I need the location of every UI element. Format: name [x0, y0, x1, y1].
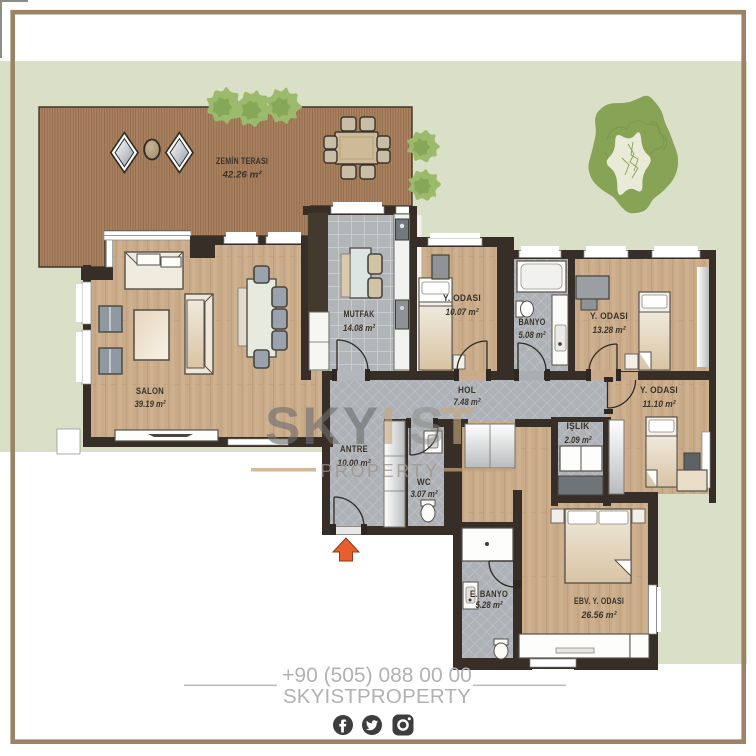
svg-text:26.56 m²: 26.56 m² [581, 610, 618, 621]
svg-text:14.08 m²: 14.08 m² [343, 323, 376, 334]
svg-text:Y. ODASI: Y. ODASI [640, 385, 678, 396]
svg-text:BANYO: BANYO [519, 317, 546, 328]
svg-text:PROPERTY: PROPERTY [320, 461, 440, 481]
svg-text:E. BANYO: E. BANYO [470, 589, 508, 600]
svg-text:SKY: SKY [265, 397, 380, 456]
svg-text:SKYISTPROPERTY: SKYISTPROPERTY [283, 685, 471, 708]
svg-text:EBV. Y. ODASI: EBV. Y. ODASI [574, 596, 624, 607]
svg-text:I: I [381, 397, 396, 456]
svg-text:11.10 m²: 11.10 m² [643, 399, 677, 410]
svg-text:5.08 m²: 5.08 m² [519, 330, 547, 341]
svg-text:42.26 m²: 42.26 m² [221, 170, 262, 181]
svg-text:13.28 m²: 13.28 m² [593, 325, 627, 336]
svg-text:2.09 m²: 2.09 m² [564, 435, 593, 446]
svg-text:5.28 m²: 5.28 m² [476, 600, 504, 611]
svg-text:3.07 m²: 3.07 m² [411, 489, 439, 500]
svg-text:HOL: HOL [458, 385, 476, 396]
svg-text:T: T [441, 397, 473, 456]
svg-text:Y. ODASI: Y. ODASI [590, 311, 628, 322]
svg-text:39.19 m²: 39.19 m² [135, 399, 167, 410]
svg-text:Y. ODASI: Y. ODASI [443, 293, 481, 304]
svg-text:10.07 m²: 10.07 m² [446, 307, 480, 318]
svg-text:S: S [409, 397, 444, 456]
svg-text:ZEMİN TERASI: ZEMİN TERASI [216, 156, 268, 167]
svg-text:MUTFAK: MUTFAK [344, 309, 375, 320]
svg-text:SALON: SALON [136, 386, 164, 397]
svg-text:İŞLİK: İŞLİK [567, 421, 590, 432]
svg-text:+90 (505) 088 00 00: +90 (505) 088 00 00 [282, 664, 472, 687]
